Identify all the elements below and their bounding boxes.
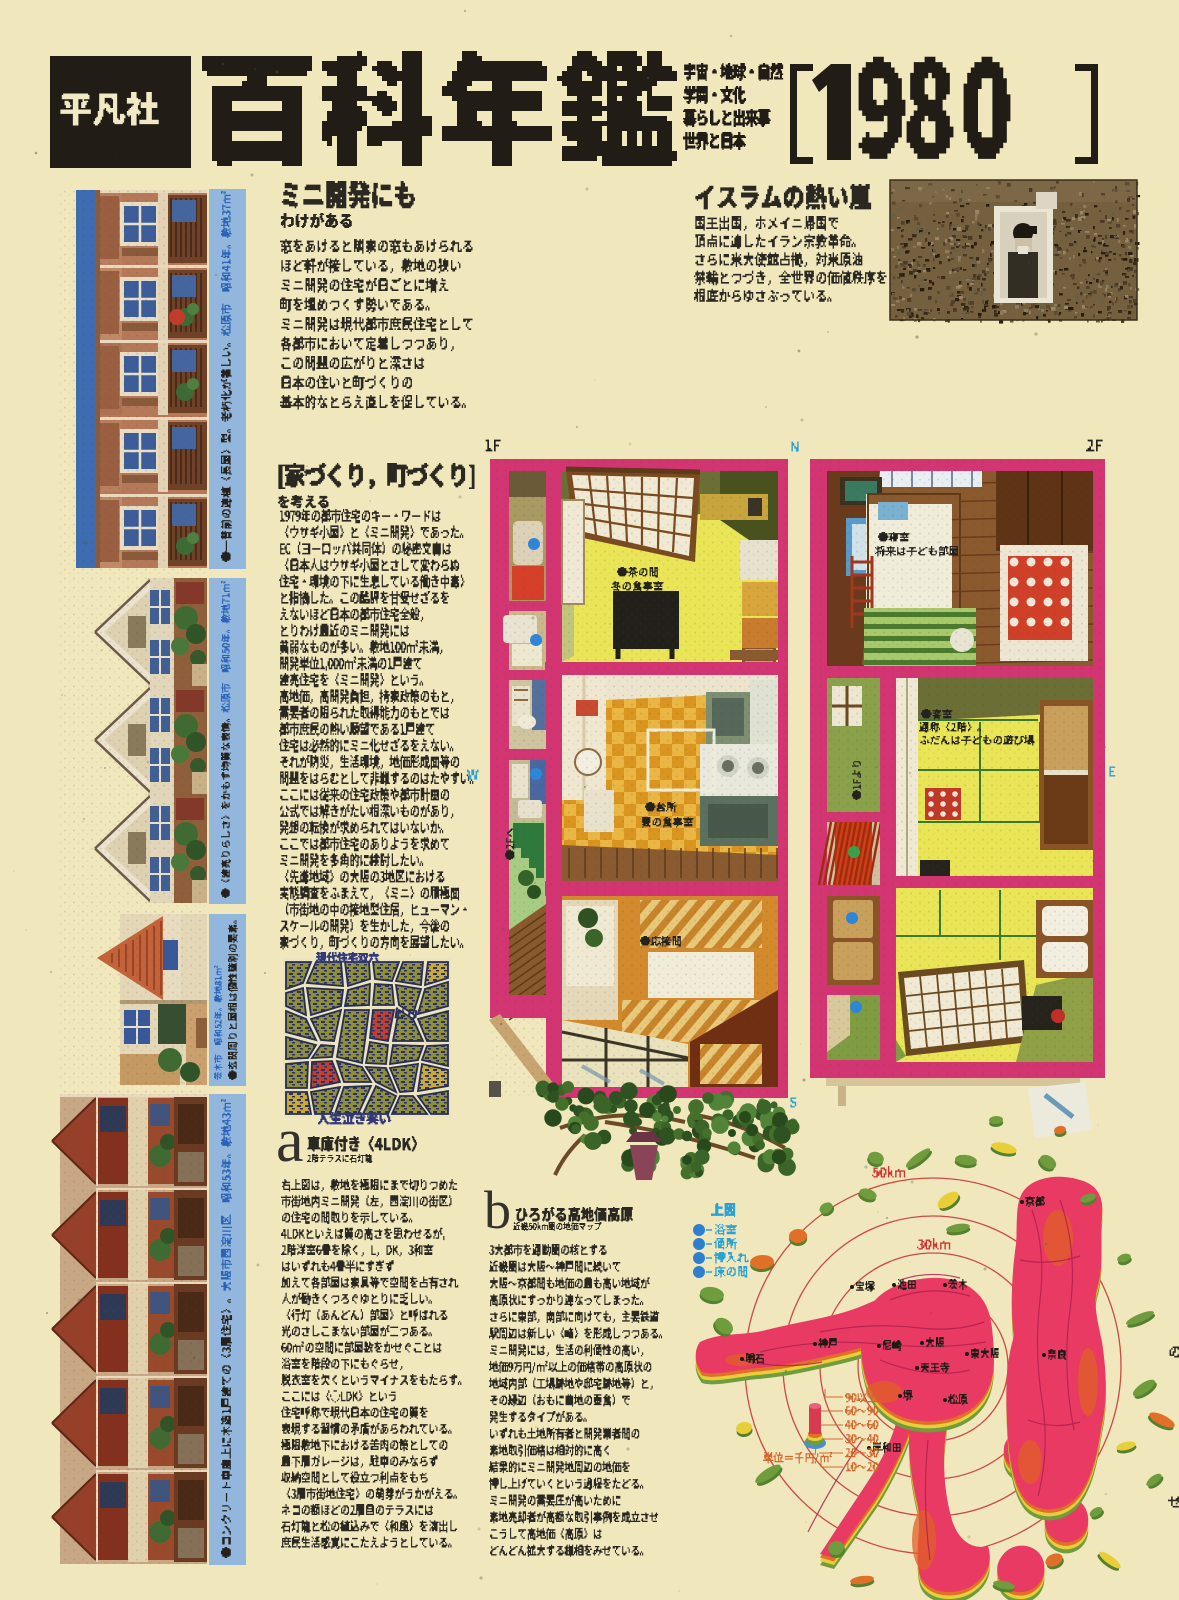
svg-text:b: b xyxy=(484,1180,511,1240)
